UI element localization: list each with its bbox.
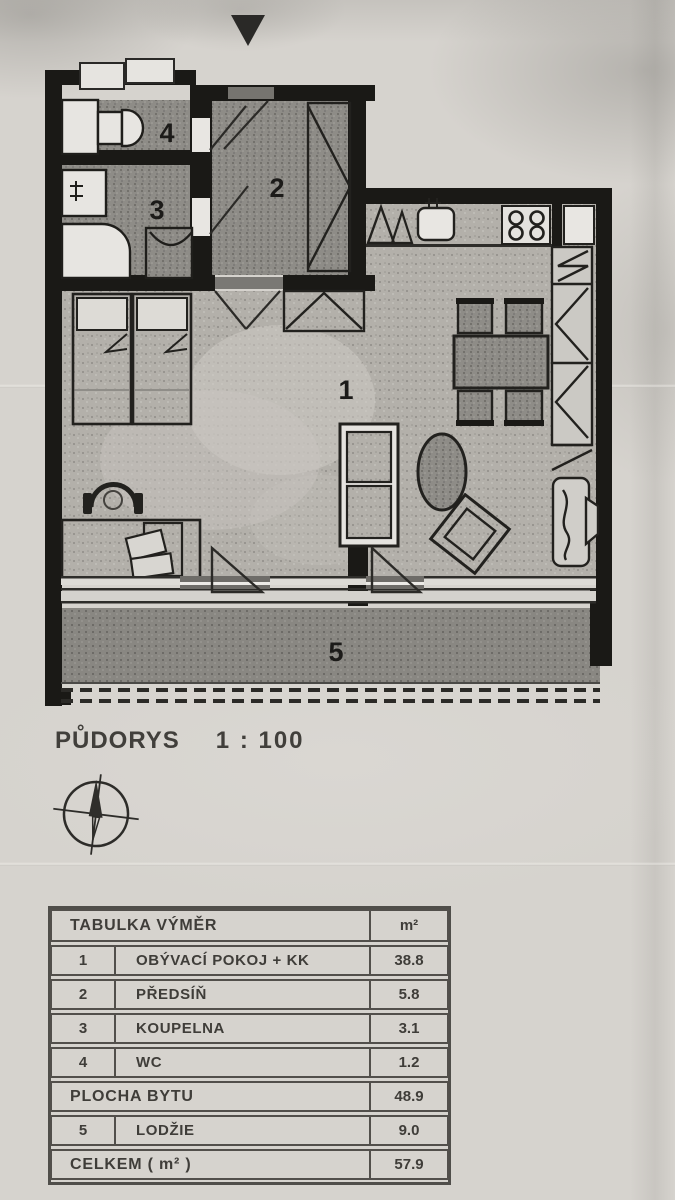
table-unit-header: m² (369, 911, 447, 940)
table-total-row: CELKEM ( m² ) 57.9 (50, 1149, 449, 1180)
area-table: TABULKA VÝMĚR m² 1 OBÝVACÍ POKOJ + KK 38… (48, 906, 451, 1185)
scanned-floorplan-page: 1 2 3 4 5 PŮDORYS1 : 100 TABULKA VÝMĚR m… (0, 0, 675, 1200)
chair-icon (506, 391, 542, 424)
table-row: 2 PŘEDSÍŇ 5.8 (50, 979, 449, 1010)
table-subtotal-row: PLOCHA BYTU 48.9 (50, 1081, 449, 1112)
shaft (62, 100, 98, 154)
row-num: 2 (52, 981, 116, 1008)
chair-icon (458, 301, 492, 333)
plan-scale: 1 : 100 (216, 727, 305, 754)
stove-icon (502, 206, 550, 244)
subtotal-label: PLOCHA BYTU (52, 1088, 369, 1106)
row-num: 5 (52, 1117, 116, 1144)
chair-icon (458, 391, 492, 424)
room-label-2: 2 (269, 173, 284, 203)
corner-shaft (564, 206, 594, 244)
row-label: OBÝVACÍ POKOJ + KK (116, 952, 369, 969)
loggia-railing-icon (61, 682, 600, 701)
room-label-3: 3 (149, 195, 164, 225)
entrance-marker-icon (231, 15, 265, 46)
table-row: 1 OBÝVACÍ POKOJ + KK 38.8 (50, 945, 449, 976)
row-label: KOUPELNA (116, 1020, 369, 1037)
row-num: 1 (52, 947, 116, 974)
room-label-5: 5 (328, 637, 343, 667)
pillow-icon (77, 298, 127, 330)
row-label: PŘEDSÍŇ (116, 986, 369, 1003)
subtotal-value: 48.9 (369, 1083, 447, 1110)
dining-table-icon (454, 336, 548, 388)
plan-title: PŮDORYS1 : 100 (55, 727, 305, 755)
hall-closet-icon (284, 291, 364, 331)
table-row: 3 KOUPELNA 3.1 (50, 1013, 449, 1044)
table-loggia-row: 5 LODŽIE 9.0 (50, 1115, 449, 1146)
total-label: CELKEM ( m² ) (52, 1156, 369, 1174)
table-row: 4 WC 1.2 (50, 1047, 449, 1078)
washbasin-icon (62, 170, 106, 216)
row-value: 1.2 (369, 1049, 447, 1076)
row-num: 4 (52, 1049, 116, 1076)
beds (73, 294, 191, 424)
table-header-row: TABULKA VÝMĚR m² (50, 909, 449, 942)
room-label-1: 1 (338, 375, 353, 405)
table-title: TABULKA VÝMĚR (52, 917, 369, 935)
floor-plan-drawing: 1 2 3 4 5 (0, 0, 675, 720)
compass-icon (50, 770, 145, 865)
room-label-4: 4 (159, 118, 174, 148)
total-value: 57.9 (369, 1151, 447, 1178)
oval-table-icon (418, 434, 466, 510)
toilet-tank-icon (98, 112, 122, 144)
shower-icon (62, 224, 130, 278)
plan-title-text: PŮDORYS (55, 727, 180, 754)
row-num: 3 (52, 1015, 116, 1042)
pillow-icon (137, 298, 187, 330)
row-label: LODŽIE (116, 1122, 369, 1139)
builtin-closet-icon (552, 247, 592, 470)
row-value: 9.0 (369, 1117, 447, 1144)
row-value: 5.8 (369, 981, 447, 1008)
row-value: 3.1 (369, 1015, 447, 1042)
paper-icon (131, 553, 173, 578)
row-value: 38.8 (369, 947, 447, 974)
chair-icon (506, 301, 542, 333)
kitchen-sink-icon (418, 208, 454, 240)
row-label: WC (116, 1054, 369, 1071)
